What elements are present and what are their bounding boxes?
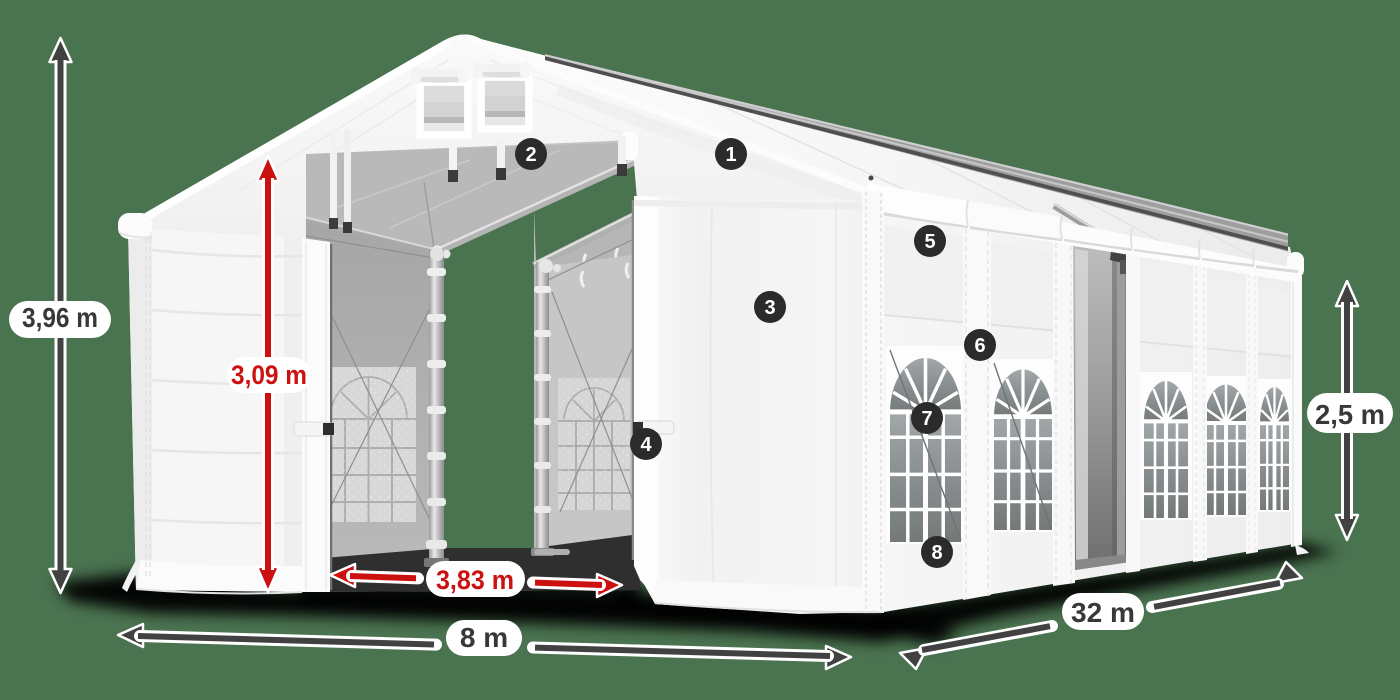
svg-text:3,09 m: 3,09 m xyxy=(231,360,307,390)
svg-text:6: 6 xyxy=(974,335,985,357)
svg-text:5: 5 xyxy=(924,231,935,253)
svg-text:1: 1 xyxy=(725,144,736,166)
svg-text:8: 8 xyxy=(931,542,942,564)
svg-text:3,83 m: 3,83 m xyxy=(436,565,514,595)
svg-text:7: 7 xyxy=(921,408,932,430)
svg-text:4: 4 xyxy=(640,434,652,456)
svg-text:2: 2 xyxy=(525,144,536,166)
svg-text:2,5 m: 2,5 m xyxy=(1315,399,1385,430)
svg-text:3,96 m: 3,96 m xyxy=(22,302,98,333)
svg-text:8 m: 8 m xyxy=(460,622,508,653)
svg-text:3: 3 xyxy=(764,297,775,319)
svg-text:32 m: 32 m xyxy=(1071,597,1135,628)
